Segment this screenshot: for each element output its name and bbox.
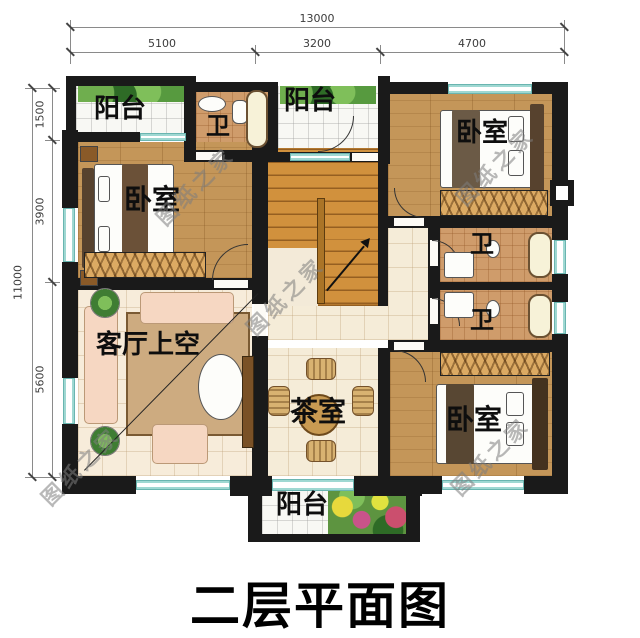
bathtub <box>528 294 552 338</box>
room-label-tea-room: 茶室 <box>290 398 346 426</box>
plan-title: 二层平面图 <box>140 566 500 638</box>
wall <box>532 82 554 94</box>
wall <box>378 76 390 164</box>
wall <box>184 82 278 92</box>
wall-notch <box>556 186 568 200</box>
chair <box>306 440 336 462</box>
wardrobe <box>440 352 550 376</box>
room-label-balcony-top-left: 阳台 <box>94 96 146 122</box>
plant-pot <box>90 288 120 318</box>
sofa <box>84 306 118 424</box>
window <box>63 378 75 424</box>
window <box>290 153 350 161</box>
door-opening <box>394 218 424 226</box>
chair <box>306 358 336 380</box>
wall <box>436 282 568 290</box>
wall <box>66 76 196 86</box>
window <box>63 208 75 262</box>
window <box>554 240 566 274</box>
chair <box>268 386 290 416</box>
wall <box>66 132 140 142</box>
room-label-bath-upper: 卫 <box>470 232 494 256</box>
dimension-line <box>70 27 565 28</box>
window <box>140 133 186 141</box>
hall-floor <box>268 306 428 340</box>
balcony-wall <box>406 478 420 542</box>
room-label-balcony-bottom: 阳台 <box>276 492 328 518</box>
balcony-wall <box>248 534 420 542</box>
door-opening <box>214 280 248 288</box>
dimension-total-height: 11000 <box>12 253 25 313</box>
dimension-segment: 3900 <box>34 182 47 242</box>
bathtub <box>528 232 552 278</box>
sofa <box>140 292 234 324</box>
window <box>554 302 566 334</box>
room-label-bath-lower: 卫 <box>470 308 494 332</box>
floor-plan-canvas: 阳台 卫 阳台 卧室 卧室 客厅上空 卫 卫 茶室 卧室 阳台 图纸之家 图纸之… <box>0 0 640 638</box>
pillow <box>98 176 110 202</box>
dimension-line <box>70 52 565 53</box>
dimension-segment: 1500 <box>34 85 47 145</box>
wall <box>380 82 448 94</box>
armchair <box>152 424 208 464</box>
nightstand <box>80 146 98 162</box>
dimension-line <box>32 88 33 478</box>
door-opening <box>352 153 378 161</box>
wall <box>378 348 390 478</box>
pillow <box>98 226 110 252</box>
wall <box>552 334 568 494</box>
dimension-segment: 5100 <box>132 37 192 50</box>
dimension-extension <box>255 45 256 64</box>
chair <box>352 386 374 416</box>
dimension-extension <box>380 45 381 64</box>
wall <box>378 162 388 306</box>
dimension-segment: 3200 <box>287 37 347 50</box>
wall <box>252 140 268 304</box>
dimension-segment: 4700 <box>442 37 502 50</box>
cabinet <box>242 356 254 448</box>
wall <box>252 336 268 478</box>
window <box>448 84 532 94</box>
window <box>136 480 230 490</box>
sink <box>198 96 226 112</box>
balcony-wall <box>248 478 262 542</box>
door-opening <box>394 342 424 350</box>
dimension-total-width: 13000 <box>287 12 347 25</box>
room-label-living-void: 客厅上空 <box>96 332 200 358</box>
room-label-balcony-top-mid: 阳台 <box>284 88 336 114</box>
dimension-segment: 5600 <box>34 350 47 410</box>
